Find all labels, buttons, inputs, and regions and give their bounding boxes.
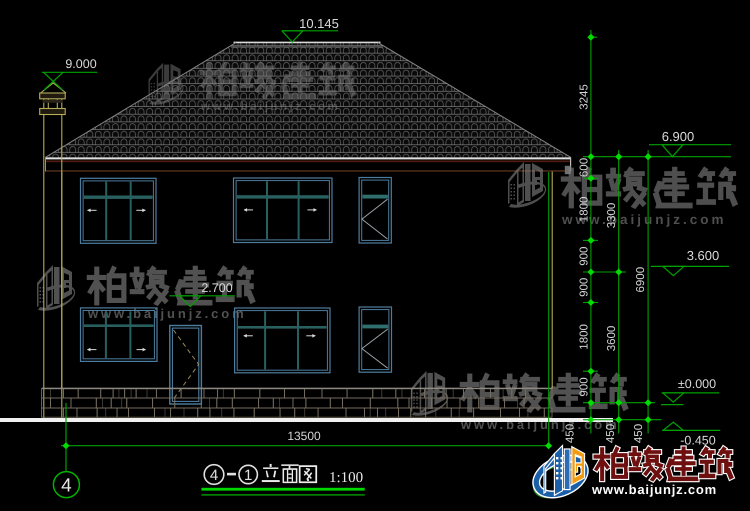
svg-text:9.000: 9.000 bbox=[65, 57, 96, 71]
svg-text:900: 900 bbox=[579, 377, 591, 396]
svg-text:www.baijunjz.com: www.baijunjz.com bbox=[200, 101, 340, 113]
svg-text:3.600: 3.600 bbox=[687, 248, 720, 263]
svg-text:900: 900 bbox=[579, 247, 591, 266]
svg-text:600: 600 bbox=[579, 158, 591, 177]
svg-text:13500: 13500 bbox=[287, 429, 321, 443]
svg-text:900: 900 bbox=[579, 278, 591, 297]
svg-text:1800: 1800 bbox=[579, 324, 591, 350]
svg-text:450: 450 bbox=[605, 424, 617, 443]
svg-text:3600: 3600 bbox=[606, 326, 618, 352]
svg-text:±0.000: ±0.000 bbox=[678, 377, 716, 391]
svg-text:1: 1 bbox=[244, 467, 252, 484]
svg-text:3245: 3245 bbox=[579, 84, 591, 110]
svg-text:2.700: 2.700 bbox=[201, 281, 232, 295]
svg-text:10.145: 10.145 bbox=[299, 16, 339, 31]
svg-text:www.baijunjz.com: www.baijunjz.com bbox=[591, 482, 717, 497]
svg-text:450: 450 bbox=[565, 424, 577, 443]
svg-text:1:100: 1:100 bbox=[329, 470, 363, 486]
svg-text:1800: 1800 bbox=[579, 197, 591, 223]
svg-text:4: 4 bbox=[210, 467, 218, 484]
svg-text:450: 450 bbox=[633, 424, 645, 443]
svg-text:6.900: 6.900 bbox=[662, 129, 695, 144]
svg-text:6900: 6900 bbox=[635, 267, 647, 293]
svg-text:3300: 3300 bbox=[606, 203, 618, 229]
svg-text:4: 4 bbox=[61, 476, 72, 497]
